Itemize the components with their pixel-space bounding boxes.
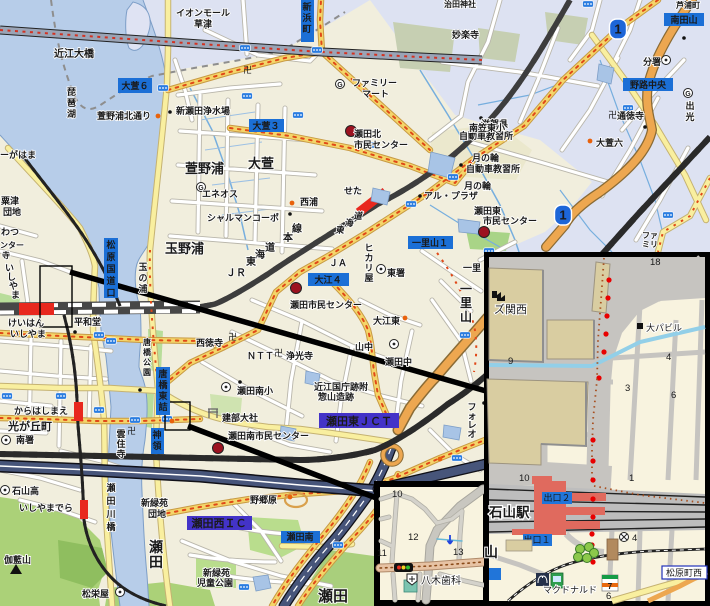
svg-text:平和堂: 平和堂 [74, 316, 101, 327]
svg-text:卍: 卍 [274, 348, 283, 358]
svg-text:玉の浦: 玉の浦 [138, 262, 147, 294]
svg-text:大萱: 大萱 [248, 156, 274, 171]
svg-text:新瀬田浄水場: 新瀬田浄水場 [176, 105, 230, 116]
svg-text:東: 東 [246, 255, 256, 268]
svg-text:一里山１: 一里山１ [412, 237, 448, 248]
svg-text:大萱６: 大萱６ [121, 80, 148, 91]
svg-text:12: 12 [408, 532, 419, 543]
svg-text:卍: 卍 [228, 332, 237, 342]
svg-text:通徳寺: 通徳寺 [617, 110, 644, 121]
svg-text:けいはんいしやま: けいはんいしやま [8, 318, 46, 339]
svg-text:月の輪: 月の輪 [463, 180, 492, 191]
svg-text:大パビル: 大パビル [646, 322, 682, 333]
svg-text:卍: 卍 [243, 65, 252, 75]
svg-text:近江大橋: 近江大橋 [54, 47, 95, 60]
svg-text:瀬田市民センター: 瀬田市民センター [290, 299, 362, 310]
svg-text:分署: 分署 [643, 56, 661, 67]
svg-text:妙楽寺: 妙楽寺 [452, 29, 479, 40]
svg-text:10: 10 [392, 489, 403, 500]
svg-text:道: 道 [265, 241, 275, 254]
svg-text:からはしまえ: からはしまえ [14, 406, 68, 416]
svg-text:寺: 寺 [2, 250, 10, 260]
svg-text:マクドナルド: マクドナルド [543, 585, 597, 595]
svg-text:G: G [337, 82, 343, 89]
svg-text:南署: 南署 [16, 434, 34, 445]
svg-text:一里山: 一里山 [460, 282, 472, 324]
svg-text:6: 6 [606, 591, 611, 602]
svg-text:10: 10 [519, 473, 530, 484]
svg-text:瀬田東ＪＣＴ: 瀬田東ＪＣＴ [326, 414, 392, 428]
svg-text:建部大社: 建部大社 [222, 412, 258, 423]
svg-text:瀬田中: 瀬田中 [385, 356, 412, 367]
svg-text:南田山: 南田山 [670, 14, 697, 25]
svg-text:ンター: ンター [0, 240, 24, 250]
svg-text:海: 海 [255, 248, 265, 261]
svg-text:瀬田南: 瀬田南 [286, 531, 313, 542]
svg-text:3: 3 [625, 383, 630, 394]
svg-text:瀬田: 瀬田 [318, 587, 348, 605]
svg-text:瀬田南市民センター: 瀬田南市民センター [228, 430, 309, 441]
svg-text:松栄屋: 松栄屋 [82, 588, 109, 599]
svg-text:6: 6 [671, 390, 676, 401]
svg-text:大萱３: 大萱３ [252, 120, 279, 131]
svg-text:浄光寺: 浄光寺 [286, 350, 313, 361]
svg-text:本: 本 [283, 231, 294, 244]
svg-text:萱野浦: 萱野浦 [185, 161, 224, 176]
svg-text:瀬田: 瀬田 [149, 539, 163, 570]
svg-text:わつ: わつ [1, 227, 19, 237]
svg-text:4: 4 [632, 533, 637, 544]
svg-text:西徳寺: 西徳寺 [196, 337, 223, 348]
svg-text:18: 18 [650, 257, 661, 268]
svg-text:ま: ま [11, 290, 20, 300]
svg-text:大江４: 大江４ [314, 274, 341, 285]
svg-text:琵琶湖: 琵琶湖 [67, 87, 76, 119]
svg-text:せた: せた [344, 186, 362, 196]
svg-text:光が丘町: 光が丘町 [7, 419, 52, 433]
svg-text:4: 4 [666, 352, 671, 363]
svg-text:ＪＡ: ＪＡ [329, 258, 347, 268]
svg-text:フォレオ: フォレオ [467, 402, 476, 439]
svg-text:治田神社: 治田神社 [444, 0, 476, 9]
svg-text:野郷原: 野郷原 [250, 494, 277, 505]
svg-text:松原国道口: 松原国道口 [106, 239, 115, 298]
svg-text:11: 11 [377, 548, 387, 559]
svg-text:いしやまでら: いしやまでら [19, 503, 73, 513]
svg-text:西浦: 西浦 [300, 196, 318, 207]
svg-text:玉野浦: 玉野浦 [165, 241, 204, 256]
svg-text:瀬田南小: 瀬田南小 [237, 385, 273, 396]
svg-text:石山高: 石山高 [11, 485, 39, 496]
svg-text:G: G [685, 91, 691, 98]
svg-text:卍: 卍 [608, 110, 617, 120]
svg-text:1: 1 [629, 473, 634, 484]
svg-text:ＮＴＴ: ＮＴＴ [247, 351, 274, 361]
svg-text:大江東: 大江東 [373, 315, 400, 326]
svg-text:芦浦町: 芦浦町 [676, 0, 700, 10]
svg-text:野路中央: 野路中央 [630, 79, 667, 90]
svg-text:八木歯科: 八木歯科 [421, 574, 461, 587]
svg-text:13: 13 [453, 547, 464, 558]
svg-text:ファミリ: ファミリ [642, 231, 658, 249]
svg-text:アル・プラザ: アル・プラザ [424, 190, 478, 201]
svg-text:シャルマンコーポ: シャルマンコーポ [207, 212, 279, 223]
svg-text:松原町西: 松原町西 [666, 567, 702, 578]
svg-text:雲住寺: 雲住寺 [116, 428, 125, 459]
svg-text:7: 7 [608, 582, 613, 591]
svg-text:伽藍山: 伽藍山 [4, 554, 31, 565]
svg-text:山: 山 [484, 544, 498, 560]
svg-text:ヒカリ屋: ヒカリ屋 [364, 243, 373, 283]
svg-text:エネオス: エネオス [202, 189, 238, 199]
svg-text:ーがはま: ーがはま [0, 149, 36, 160]
svg-text:南笠東小: 南笠東小 [469, 122, 505, 133]
svg-text:卍: 卍 [127, 426, 136, 436]
svg-text:東署: 東署 [387, 267, 405, 278]
svg-text:山中: 山中 [355, 341, 373, 352]
svg-text:新浜町: 新浜町 [302, 1, 311, 34]
svg-text:出口２: 出口２ [543, 492, 570, 503]
svg-text:瀬田西ＩＣ: 瀬田西ＩＣ [192, 516, 247, 530]
svg-text:一里: 一里 [463, 263, 481, 273]
svg-text:ズ関西: ズ関西 [494, 302, 527, 316]
svg-text:萱野浦北通り: 萱野浦北通り [97, 110, 151, 121]
svg-text:ＪＲ: ＪＲ [226, 267, 246, 279]
svg-text:9: 9 [508, 356, 513, 367]
svg-text:線: 線 [292, 222, 302, 235]
svg-text:大萱六: 大萱六 [596, 137, 623, 148]
svg-text:石山駅: 石山駅 [488, 505, 530, 520]
